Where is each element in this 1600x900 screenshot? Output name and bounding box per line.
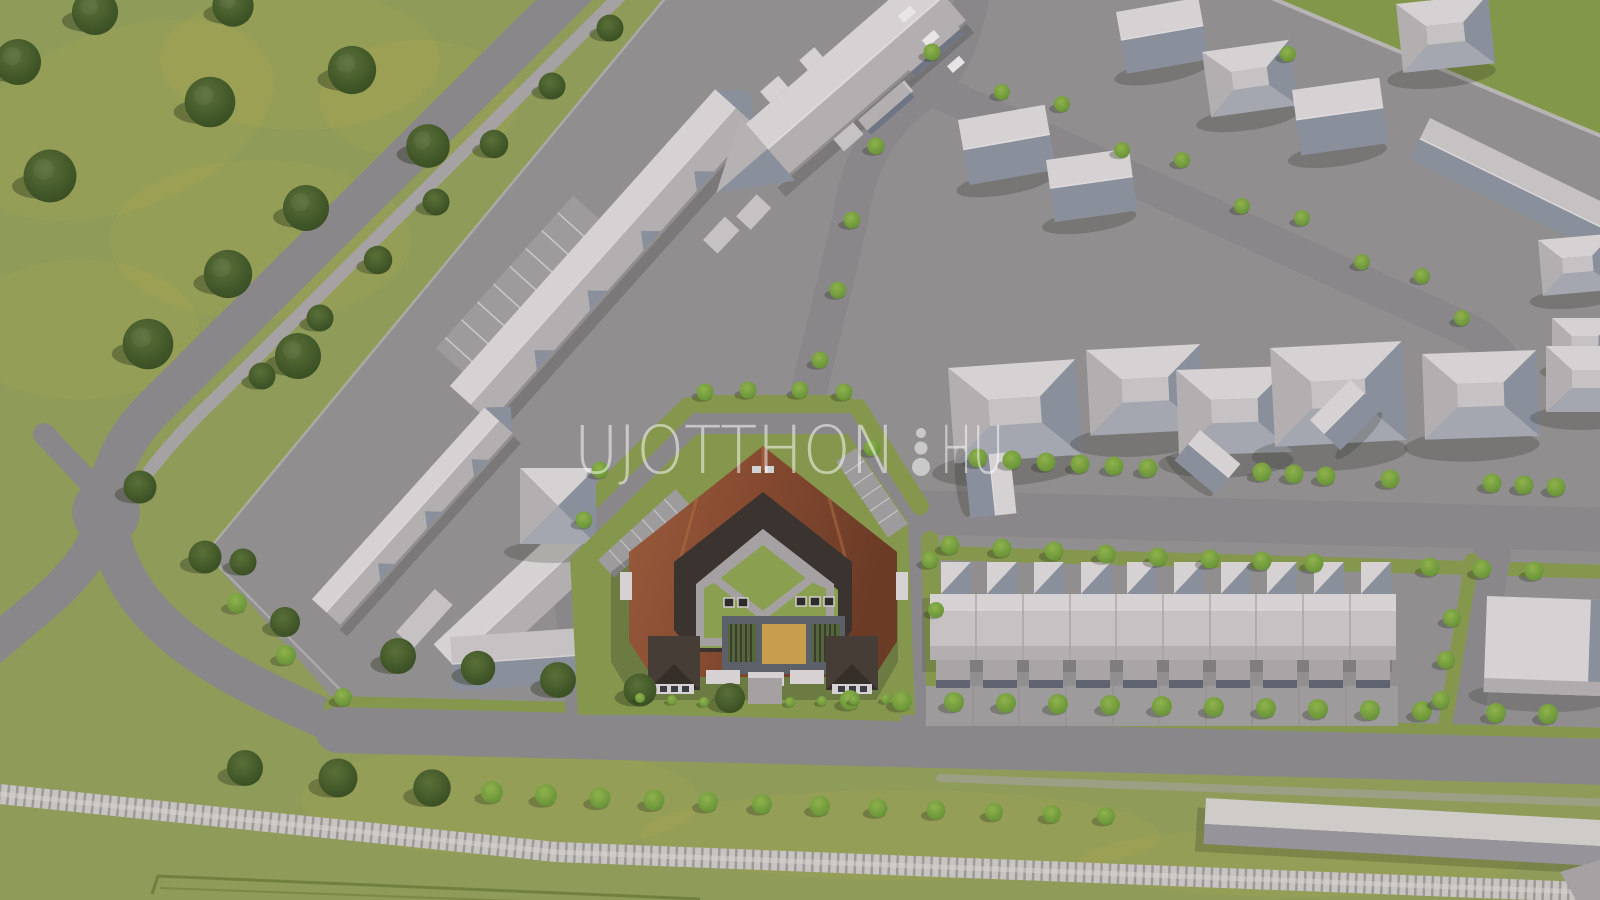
commercial-building-right	[1468, 595, 1600, 714]
balcony-east	[896, 572, 908, 600]
balcony-west	[620, 572, 632, 600]
road-middle-horizontal	[902, 512, 1600, 530]
watermark-suffix: HU	[940, 412, 1004, 489]
road-bottom-horizontal	[338, 730, 1600, 762]
site-plan-svg: UJOTTHON HU	[0, 0, 1600, 900]
render-viewport: UJOTTHON HU	[0, 0, 1600, 900]
pergola-left	[728, 624, 756, 662]
corner-pavilion-right	[826, 636, 878, 694]
playground-sand	[762, 624, 806, 664]
watermark-main: UJOTTHON	[574, 412, 896, 489]
watermark: UJOTTHON HU	[574, 412, 1004, 489]
entrance-walk	[748, 678, 782, 704]
